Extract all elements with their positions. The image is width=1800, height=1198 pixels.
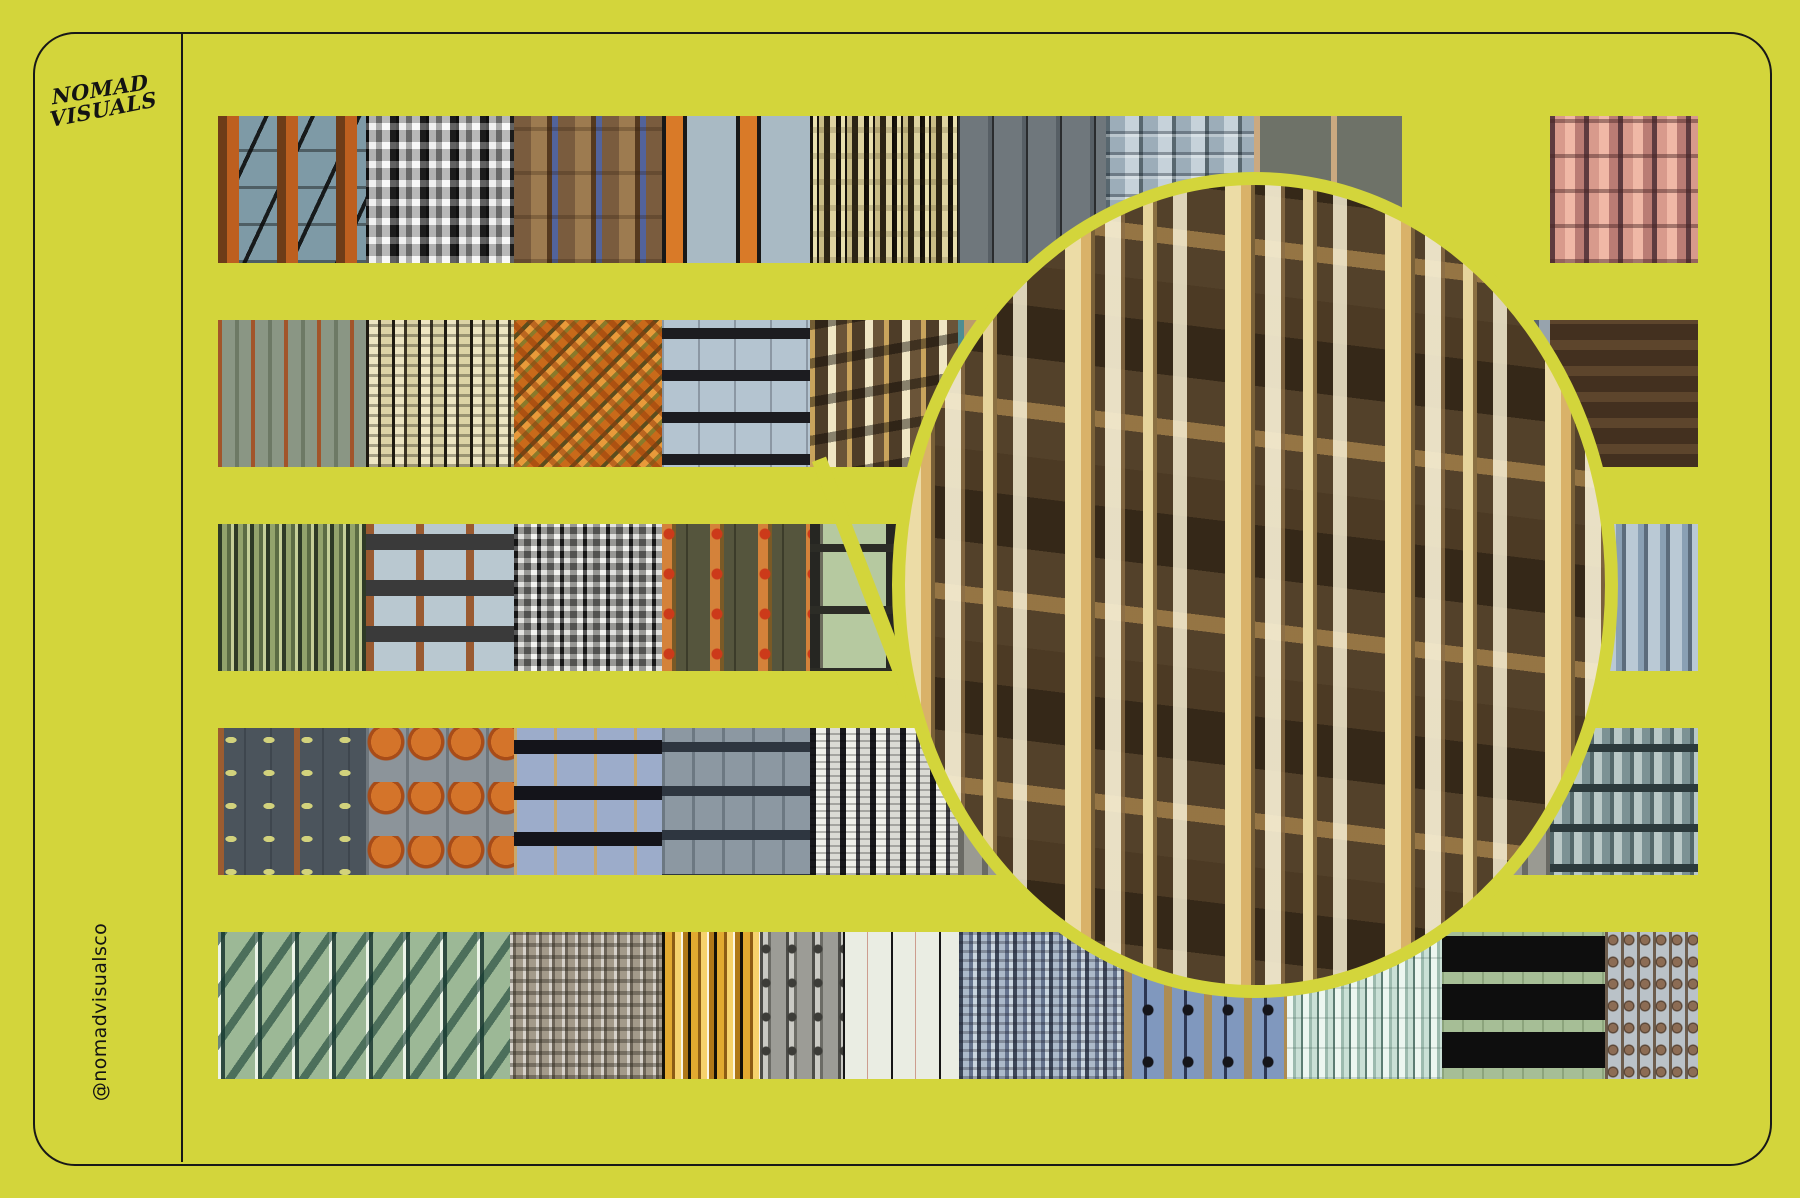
tile-pale-blue-rust-columns [366,524,514,671]
tile-artdeco-cream-black [810,116,958,263]
tile-orange-green-mosaic [514,320,662,467]
poster-canvas: { "canvas": { "background_color": "#d3d5… [0,0,1800,1198]
tile-silver-carved-columns [514,524,662,671]
tile-pale-blue-window-dashes [662,320,810,467]
tile-gold-black-stripes [662,932,760,1079]
tile-gray-pipes-joints [760,932,843,1079]
tile-orange-scallop-columns [366,728,514,875]
magnifier-circle [892,172,1618,998]
tile-sage-rust-pinstripes [218,320,366,467]
tile-slate-yellow-drops [218,728,366,875]
tile-gray-tee-panels [662,728,810,875]
tile-facade-grid-rust-blue [218,116,366,263]
tile-white-thin-black-lines [843,932,959,1079]
left-column-divider [181,32,183,1162]
tile-orange-bars-on-blue [662,116,810,263]
swatch-row-5 [218,932,1698,1079]
swatch-row-1 [218,116,1698,263]
tile-olive-fine-stripes [218,524,366,671]
social-handle: @nomadvisualsco [89,923,111,1101]
tile-salmon-ribbed [1550,116,1698,263]
tile-carved-stone-mottle [510,932,662,1079]
tile-periwinkle-window-dashes [514,728,662,875]
tile-olive-orange-columns-red-dots [662,524,810,671]
tile-timber-log-columns [514,116,662,263]
tile-gray-figure-stripes [1605,932,1698,1079]
tile-green-black-lattice [1442,932,1605,1079]
tile-cream-black-ladder-stripes [366,320,514,467]
tile-metallic-silver-stripes [366,116,514,263]
tile-green-chevron-facade [218,932,510,1079]
